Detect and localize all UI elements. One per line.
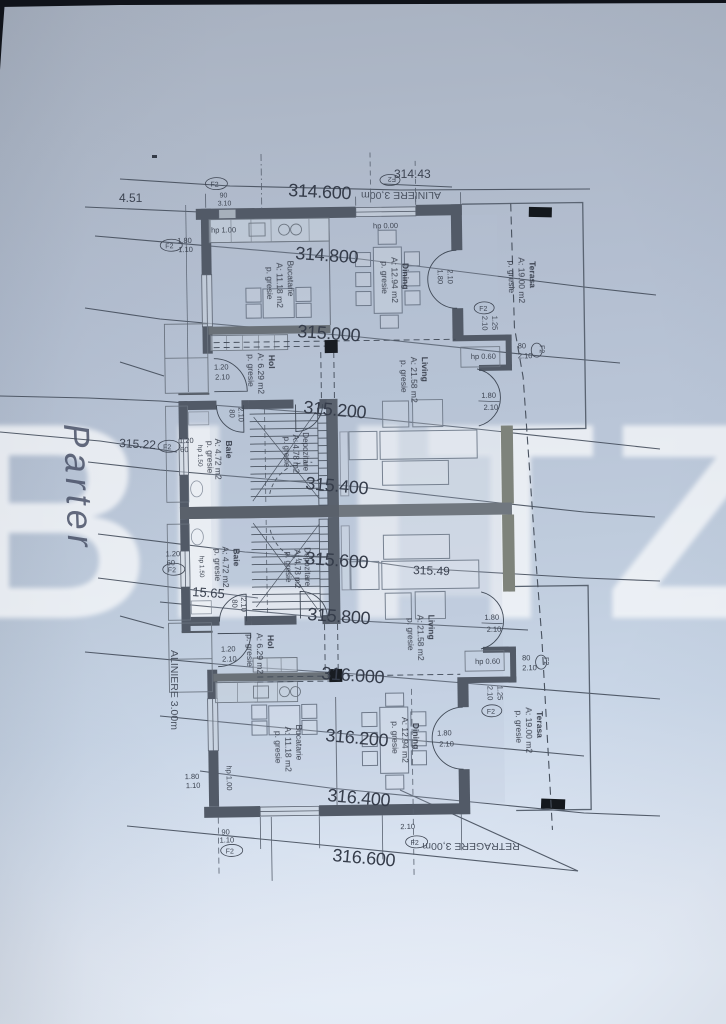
svg-text:1.10: 1.10 [220, 835, 235, 844]
svg-text:3.10: 3.10 [218, 200, 232, 207]
svg-text:F2: F2 [542, 657, 549, 665]
svg-text:2.10: 2.10 [483, 403, 498, 412]
svg-text:Terasa: Terasa [528, 261, 538, 288]
svg-text:A: 11.18 m2: A: 11.18 m2 [283, 727, 294, 773]
svg-text:p. gresie: p. gresie [265, 267, 275, 300]
svg-text:Parter: Parter [56, 423, 101, 552]
svg-text:Dining: Dining [401, 263, 411, 290]
svg-text:1.80: 1.80 [484, 613, 499, 622]
svg-text:Baie: Baie [224, 440, 234, 458]
svg-text:Baie: Baie [231, 548, 241, 566]
svg-text:A: 6.29 m2: A: 6.29 m2 [255, 633, 266, 675]
svg-text:hp 1.50: hp 1.50 [196, 445, 203, 467]
svg-text:2.10: 2.10 [400, 822, 415, 831]
svg-text:Hol: Hol [267, 355, 277, 369]
svg-text:2.10: 2.10 [487, 625, 502, 634]
svg-text:p. gresie: p. gresie [405, 618, 415, 651]
svg-text:hp 0.60: hp 0.60 [475, 657, 500, 666]
svg-text:F2: F2 [165, 243, 173, 250]
svg-text:Living: Living [420, 357, 430, 382]
svg-text:Terasa: Terasa [535, 711, 545, 738]
svg-text:F2: F2 [226, 848, 234, 855]
svg-text:p. gresie: p. gresie [284, 552, 293, 583]
svg-text:1.10: 1.10 [186, 781, 201, 790]
svg-text:80: 80 [518, 341, 526, 350]
svg-text:p. gresie: p. gresie [213, 549, 223, 582]
svg-text:ALINIERE 3,00m: ALINIERE 3,00m [361, 189, 441, 201]
svg-text:80: 80 [230, 599, 239, 607]
svg-text:90: 90 [220, 192, 228, 199]
svg-text:hp 1.00: hp 1.00 [225, 765, 234, 790]
svg-text:F2: F2 [411, 840, 419, 847]
svg-text:A: 12.94 m2: A: 12.94 m2 [400, 717, 411, 763]
svg-text:15.65: 15.65 [192, 584, 226, 601]
svg-text:p. gresie: p. gresie [282, 437, 291, 468]
svg-text:2.10: 2.10 [480, 316, 489, 331]
svg-text:Hol: Hol [266, 635, 276, 649]
svg-text:A: 12.94 m2: A: 12.94 m2 [389, 257, 400, 303]
svg-text:RETRAGERE 3,00m: RETRAGERE 3,00m [422, 840, 520, 852]
svg-text:2.10: 2.10 [522, 663, 537, 672]
svg-text:2.10: 2.10 [215, 372, 230, 381]
svg-text:F2: F2 [168, 567, 176, 574]
svg-text:A: 21.58 m2: A: 21.58 m2 [409, 357, 420, 403]
svg-text:A: 19.00 m2: A: 19.00 m2 [524, 707, 535, 753]
svg-text:1.80: 1.80 [177, 236, 192, 245]
svg-text:2.10: 2.10 [222, 654, 237, 663]
svg-text:4.51: 4.51 [119, 191, 143, 205]
svg-text:p. gresie: p. gresie [399, 360, 409, 393]
svg-text:1.25: 1.25 [490, 316, 499, 331]
svg-text:hp 1.00: hp 1.00 [211, 225, 236, 234]
svg-text:80: 80 [522, 653, 530, 662]
svg-text:p. gresie: p. gresie [245, 634, 255, 667]
svg-text:60: 60 [167, 558, 175, 567]
svg-text:1.80: 1.80 [437, 728, 452, 737]
svg-text:F2: F2 [388, 175, 396, 182]
svg-text:p. gresie: p. gresie [514, 710, 524, 743]
svg-text:1.20: 1.20 [166, 549, 181, 558]
svg-text:1.25: 1.25 [495, 686, 504, 701]
svg-text:2.10: 2.10 [237, 407, 246, 422]
svg-text:A: 4.78 m2: A: 4.78 m2 [291, 434, 301, 473]
svg-text:315.49: 315.49 [413, 563, 450, 578]
svg-text:A: 21.58 m2: A: 21.58 m2 [415, 615, 426, 661]
svg-text:Bucatarie: Bucatarie [294, 724, 305, 760]
svg-text:p. gresie: p. gresie [390, 721, 400, 754]
svg-text:80: 80 [228, 409, 237, 417]
svg-text:F2: F2 [487, 709, 495, 716]
svg-text:Depozitare: Depozitare [301, 432, 311, 471]
svg-text:A: 11.18 m2: A: 11.18 m2 [275, 263, 286, 309]
svg-text:2.10: 2.10 [239, 597, 248, 612]
svg-text:A: 19.00 m2: A: 19.00 m2 [516, 257, 527, 303]
svg-text:hp 0.00: hp 0.00 [373, 221, 398, 230]
svg-text:F2: F2 [210, 182, 218, 189]
svg-text:1.20: 1.20 [221, 644, 236, 653]
svg-text:ALINIERE 3.00m: ALINIERE 3.00m [168, 650, 180, 730]
svg-text:2.10: 2.10 [446, 269, 455, 284]
svg-text:2.10: 2.10 [439, 739, 454, 748]
svg-text:p. gresie: p. gresie [380, 261, 390, 294]
svg-text:hp 1.50: hp 1.50 [198, 556, 205, 578]
svg-text:p. gresie: p. gresie [273, 731, 283, 764]
svg-text:p. gresie: p. gresie [205, 441, 215, 474]
svg-text:Living: Living [426, 615, 436, 640]
svg-text:p. gresie: p. gresie [507, 260, 517, 293]
svg-text:hp 0.60: hp 0.60 [471, 352, 496, 361]
svg-text:p. gresie: p. gresie [246, 354, 256, 387]
svg-text:A: 6.29 m2: A: 6.29 m2 [256, 353, 267, 395]
svg-text:315.22: 315.22 [119, 436, 157, 452]
svg-text:1.20: 1.20 [214, 362, 229, 371]
svg-text:F2: F2 [538, 345, 545, 353]
svg-text:1.10: 1.10 [178, 245, 193, 254]
svg-text:A: 4.78 m2: A: 4.78 m2 [293, 549, 303, 588]
svg-text:1.80: 1.80 [185, 772, 200, 781]
svg-text:F2: F2 [163, 444, 171, 451]
svg-text:1.80: 1.80 [481, 391, 496, 400]
svg-text:1.80: 1.80 [436, 269, 445, 284]
svg-text:1.20: 1.20 [179, 436, 194, 445]
svg-text:Bucatarie: Bucatarie [285, 260, 296, 296]
svg-text:60: 60 [180, 445, 188, 454]
svg-text:314.600: 314.600 [288, 180, 352, 203]
svg-text:F2: F2 [479, 306, 487, 313]
svg-text:2.10: 2.10 [485, 686, 494, 701]
svg-text:Dining: Dining [411, 723, 421, 750]
svg-text:2.10: 2.10 [518, 351, 533, 360]
